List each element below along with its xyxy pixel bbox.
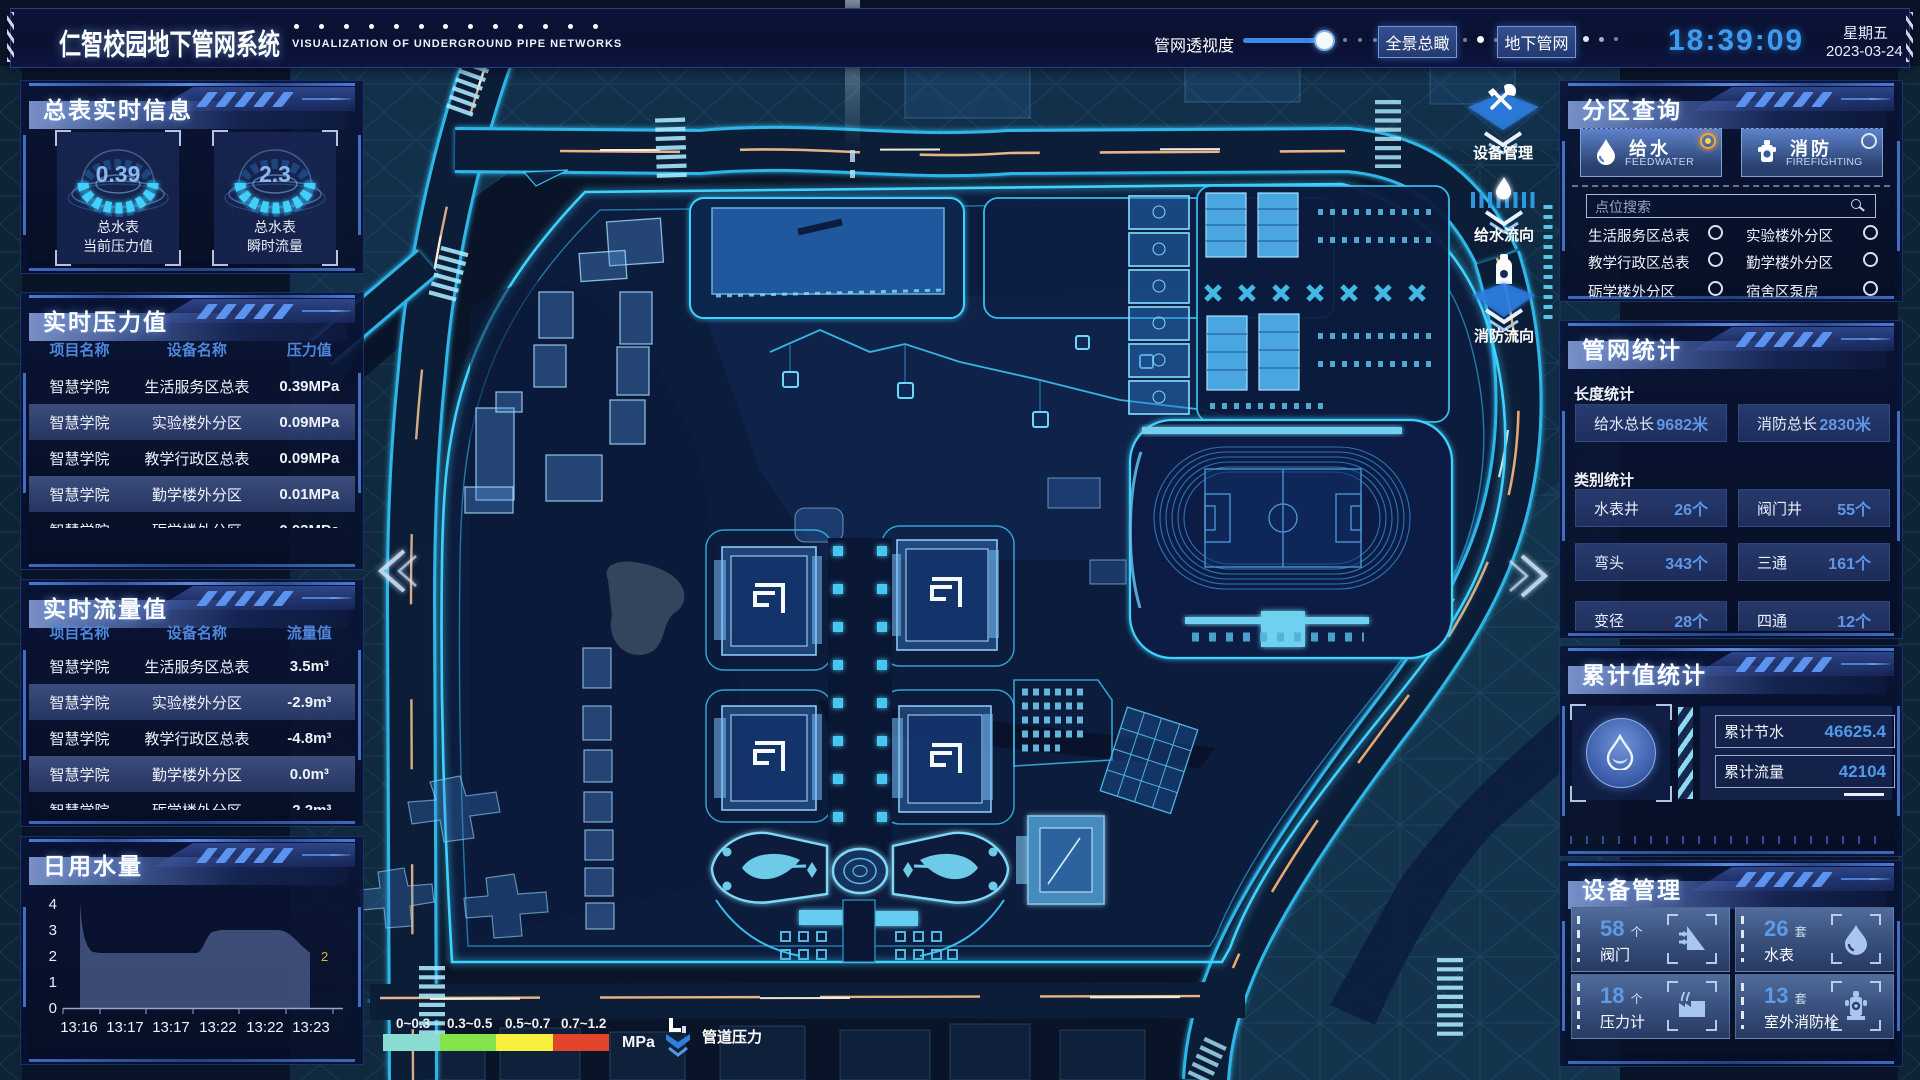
svg-text:13:23: 13:23 (292, 1019, 330, 1036)
svg-text:13:17: 13:17 (152, 1019, 190, 1036)
svg-text:13:17: 13:17 (106, 1019, 144, 1036)
svg-text:1: 1 (49, 974, 57, 991)
svg-text:给水流向: 给水流向 (1474, 226, 1534, 244)
svg-text:0: 0 (49, 1000, 57, 1017)
svg-text:设备管理: 设备管理 (1473, 144, 1533, 162)
svg-text:4: 4 (49, 896, 57, 913)
svg-text:消防流向: 消防流向 (1474, 327, 1534, 345)
svg-text:2: 2 (49, 948, 57, 965)
svg-text:2.3: 2.3 (259, 161, 291, 187)
svg-text:13:22: 13:22 (246, 1019, 284, 1036)
svg-text:13:22: 13:22 (199, 1019, 237, 1036)
svg-text:0.39: 0.39 (96, 161, 141, 187)
svg-text:3: 3 (49, 922, 57, 939)
svg-text:2: 2 (321, 949, 328, 964)
svg-text:13:16: 13:16 (60, 1019, 98, 1036)
